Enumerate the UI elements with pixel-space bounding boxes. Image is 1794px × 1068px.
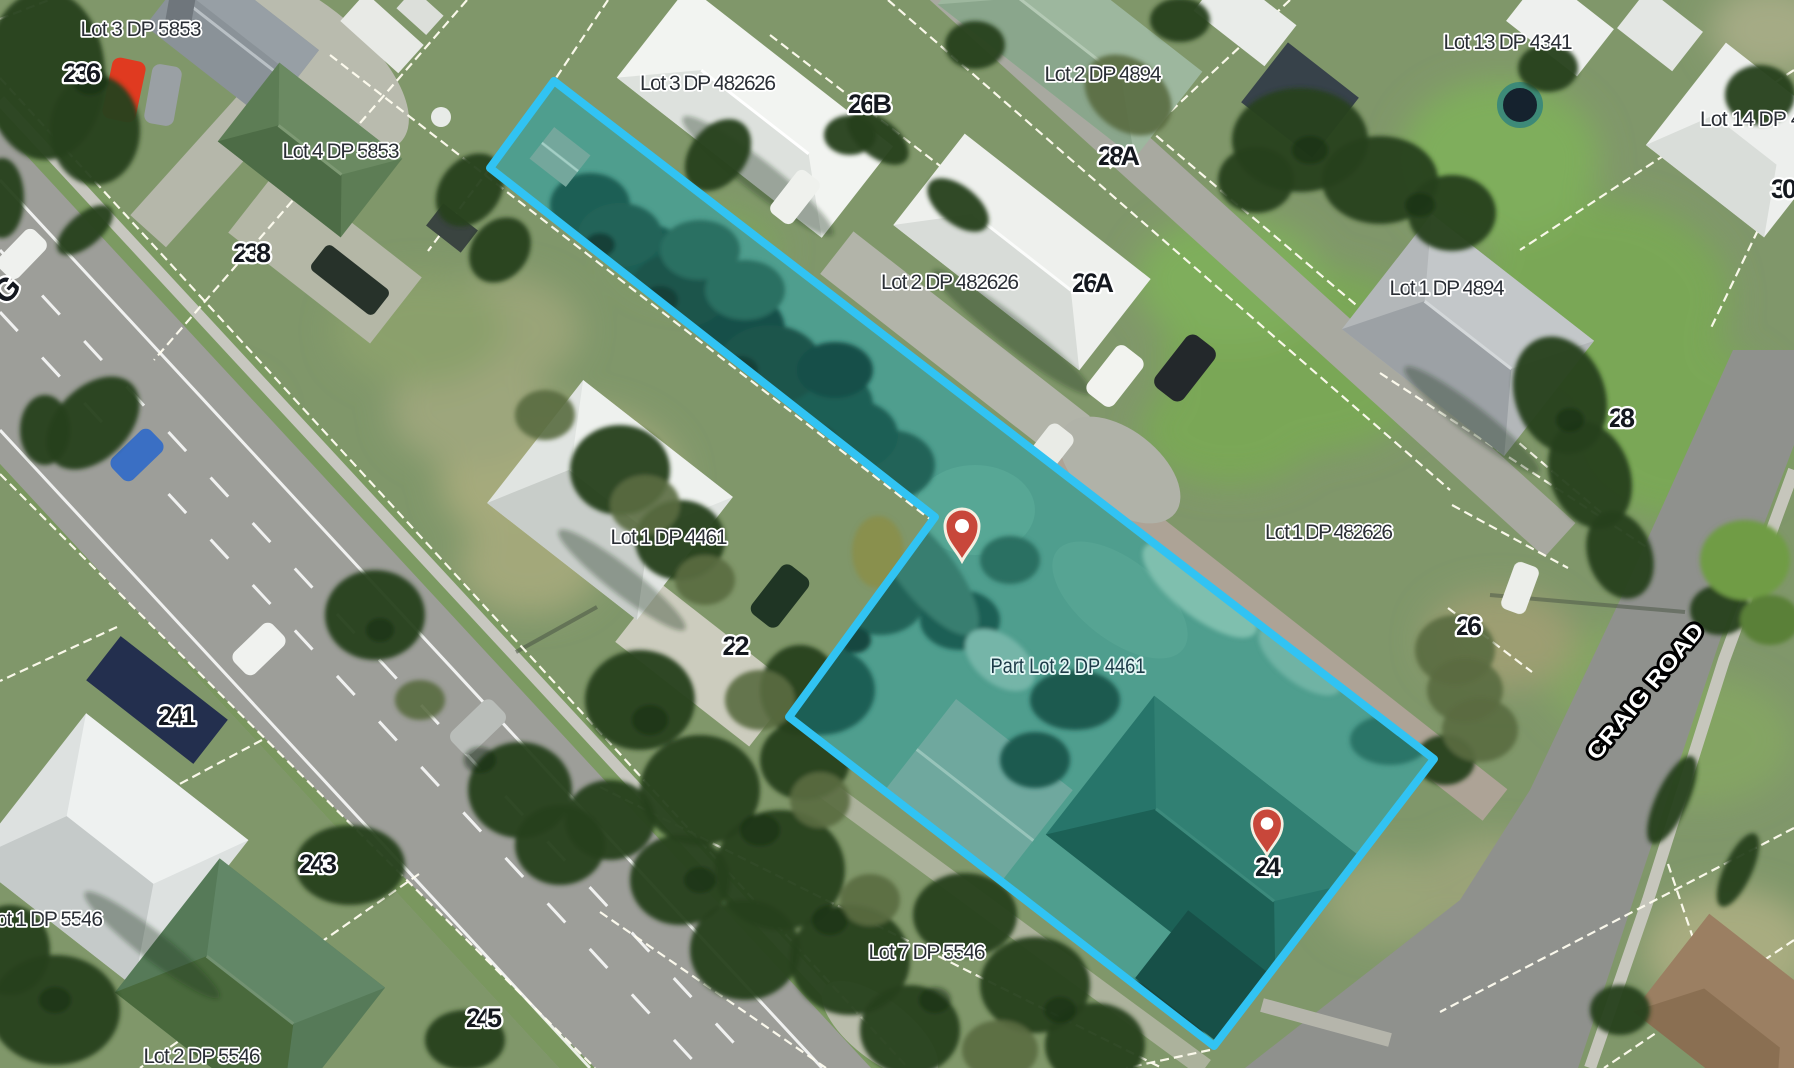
svg-text:241: 241 bbox=[158, 701, 196, 731]
svg-text:Lot 3 DP 5853: Lot 3 DP 5853 bbox=[81, 18, 202, 41]
svg-text:Lot 2 DP 5546: Lot 2 DP 5546 bbox=[144, 1045, 261, 1068]
svg-text:28: 28 bbox=[1609, 403, 1635, 433]
svg-text:Lot 2 DP 482626: Lot 2 DP 482626 bbox=[881, 271, 1019, 294]
svg-text:Lot 3 DP 482626: Lot 3 DP 482626 bbox=[640, 72, 776, 95]
svg-text:28A: 28A bbox=[1098, 141, 1140, 171]
svg-text:30: 30 bbox=[1771, 174, 1794, 204]
svg-text:22: 22 bbox=[723, 631, 750, 661]
svg-text:Part Lot 2 DP 4461: Part Lot 2 DP 4461 bbox=[991, 655, 1146, 678]
svg-text:243: 243 bbox=[299, 849, 337, 879]
svg-text:236: 236 bbox=[63, 58, 101, 88]
svg-text:Lot 1 DP 4894: Lot 1 DP 4894 bbox=[1390, 277, 1505, 300]
svg-text:Lot 4 DP 5853: Lot 4 DP 5853 bbox=[283, 140, 400, 163]
svg-text:24: 24 bbox=[1255, 852, 1281, 882]
svg-text:245: 245 bbox=[466, 1003, 502, 1033]
svg-text:Lot 7 DP 5546: Lot 7 DP 5546 bbox=[869, 941, 986, 964]
svg-text:26B: 26B bbox=[848, 89, 892, 119]
svg-text:238: 238 bbox=[233, 238, 271, 268]
svg-text:Lot 1 DP 4461: Lot 1 DP 4461 bbox=[611, 526, 728, 549]
svg-text:Lot 1 DP 482626: Lot 1 DP 482626 bbox=[1265, 521, 1393, 544]
svg-text:26: 26 bbox=[1456, 611, 1482, 641]
svg-text:Lot 1 DP 5546: Lot 1 DP 5546 bbox=[0, 908, 103, 931]
svg-text:26A: 26A bbox=[1072, 268, 1114, 298]
svg-text:Lot 13 DP 4341: Lot 13 DP 4341 bbox=[1444, 31, 1573, 54]
svg-text:Lot 2 DP 4894: Lot 2 DP 4894 bbox=[1045, 63, 1162, 86]
svg-text:Lot 14 DP 4341: Lot 14 DP 4341 bbox=[1700, 108, 1794, 131]
